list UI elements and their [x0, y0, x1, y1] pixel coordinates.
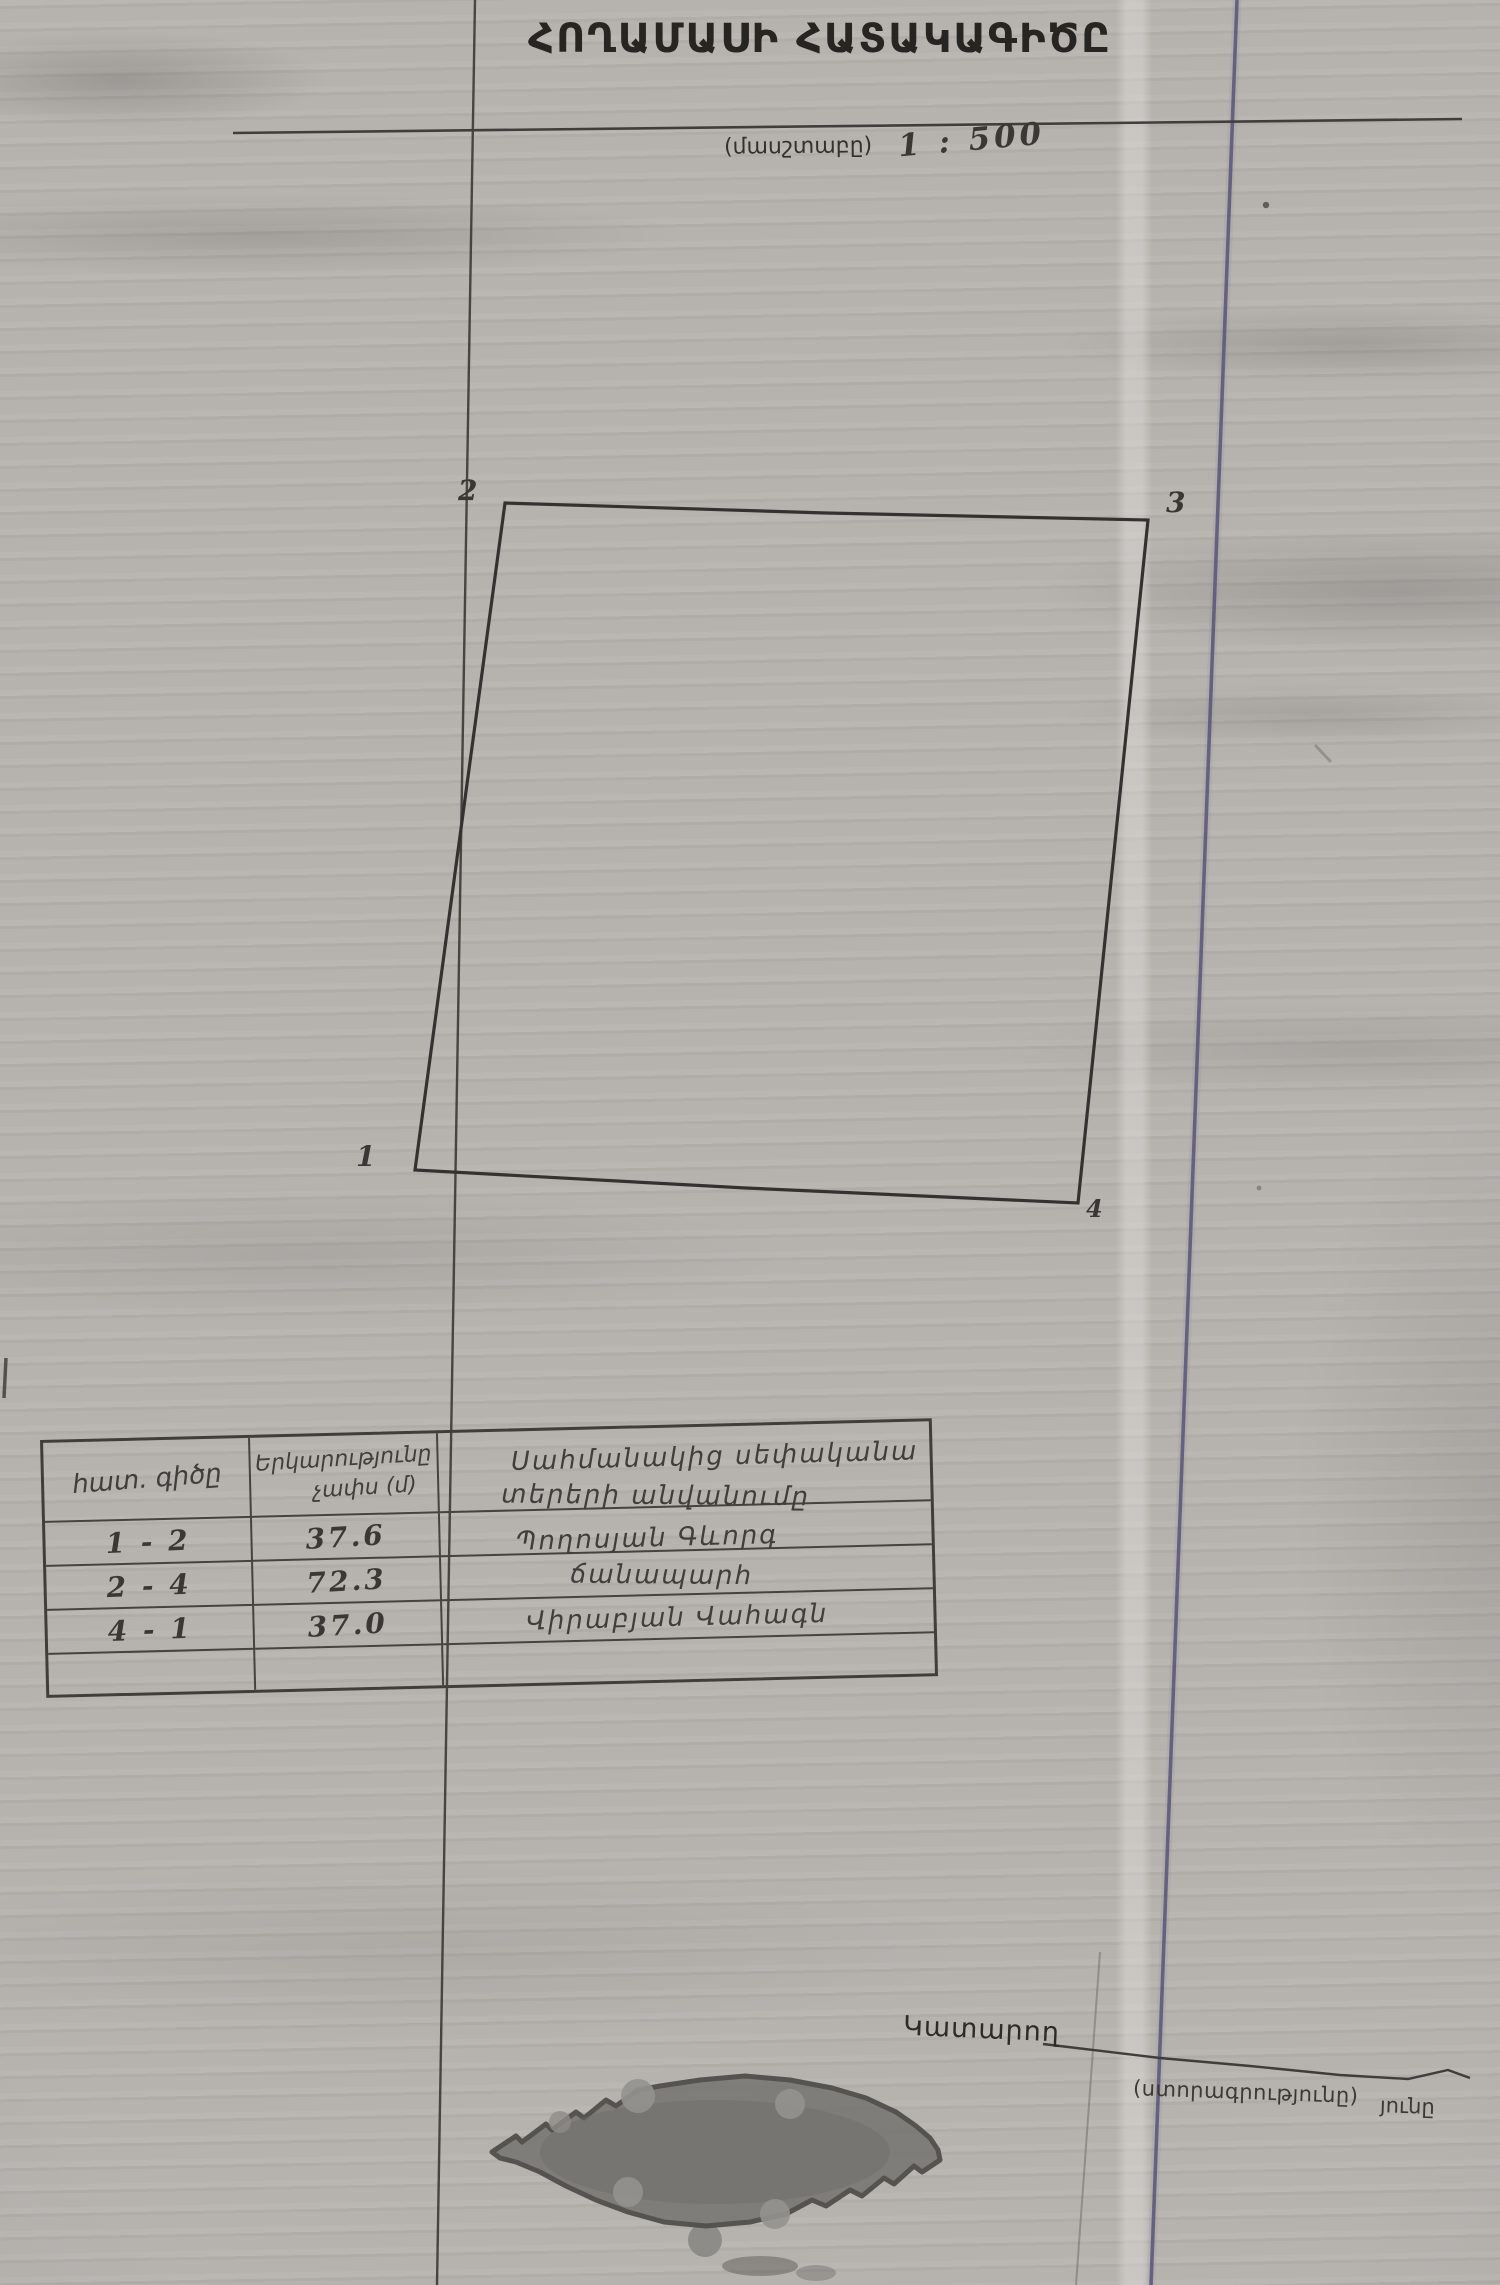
bottom-smudge — [722, 2256, 798, 2276]
table-header-length-line1: Երկարությունը — [254, 1441, 432, 1476]
neighbors-line: Վիրաբյան Վահագն — [526, 1591, 939, 1642]
left-ruled-line — [437, 0, 475, 2285]
stamp-ring-4 — [760, 2199, 790, 2229]
vertex-label-1: 1 — [356, 1140, 375, 1173]
table-header-length: Երկարությունըչափս (մ) — [254, 1441, 434, 1507]
vertex-label-2: 2 — [458, 474, 477, 507]
bottom-smudge-2 — [796, 2265, 836, 2281]
stamp-ring-5 — [549, 2111, 571, 2133]
neighbors-text-block: Սահմանակից սեփականա տերերի անվանումը Պող… — [497, 1435, 939, 1639]
document-title: ՀՈՂԱՄԱՍԻ ՀԱՏԱԿԱԳԻԾԸ — [420, 16, 1220, 62]
table-empty-cell — [255, 1645, 444, 1690]
signature-caption-fragment: յունը — [1380, 2093, 1436, 2119]
stamp — [492, 2076, 940, 2257]
document-linework — [0, 0, 1500, 2285]
stamp-ring-1 — [621, 2079, 655, 2113]
blue-ruled-line — [1151, 0, 1237, 2285]
table-row-length: 37.6 — [304, 1518, 386, 1556]
secondary-ruled-line — [1076, 1952, 1100, 2285]
stamp-inner-shade — [540, 2100, 890, 2204]
left-edge-mark — [4, 1358, 6, 1398]
table-row-segment: 1 - 2 — [105, 1523, 191, 1560]
stamp-ring-3 — [613, 2177, 643, 2207]
title-rule — [233, 119, 1462, 133]
table-empty-cell — [48, 1650, 256, 1695]
vertex-label-3: 3 — [1166, 486, 1185, 519]
table-header-segment: հատ. գիծը — [71, 1459, 223, 1500]
table-row-length: 72.3 — [306, 1562, 388, 1600]
ink-speck-2 — [1257, 1186, 1262, 1191]
table-row-length: 37.0 — [307, 1606, 389, 1644]
table-row-segment: 4 - 1 — [107, 1611, 193, 1648]
ink-speck — [1263, 202, 1269, 208]
scanned-document-page: ՀՈՂԱՄԱՍԻ ՀԱՏԱԿԱԳԻԾԸ (մասշտաբը) 1 : 500 1… — [0, 0, 1500, 2285]
scale-label: (մասշտաբը) — [724, 133, 872, 160]
signature-line — [1043, 2044, 1470, 2079]
table-header-length-line2: չափս (մ) — [296, 1471, 434, 1505]
table-row-segment: 2 - 4 — [106, 1567, 192, 1604]
vertex-label-4: 4 — [1086, 1194, 1103, 1223]
stamp-ring-2 — [775, 2089, 805, 2119]
plot-outline — [415, 503, 1148, 1203]
neighbors-line: ճանապարհ — [570, 1555, 938, 1598]
ink-dash — [1315, 745, 1331, 762]
measurement-table: հատ. գիծը Երկարությունըչափս (մ) 1 - 2 37… — [40, 1418, 938, 1698]
